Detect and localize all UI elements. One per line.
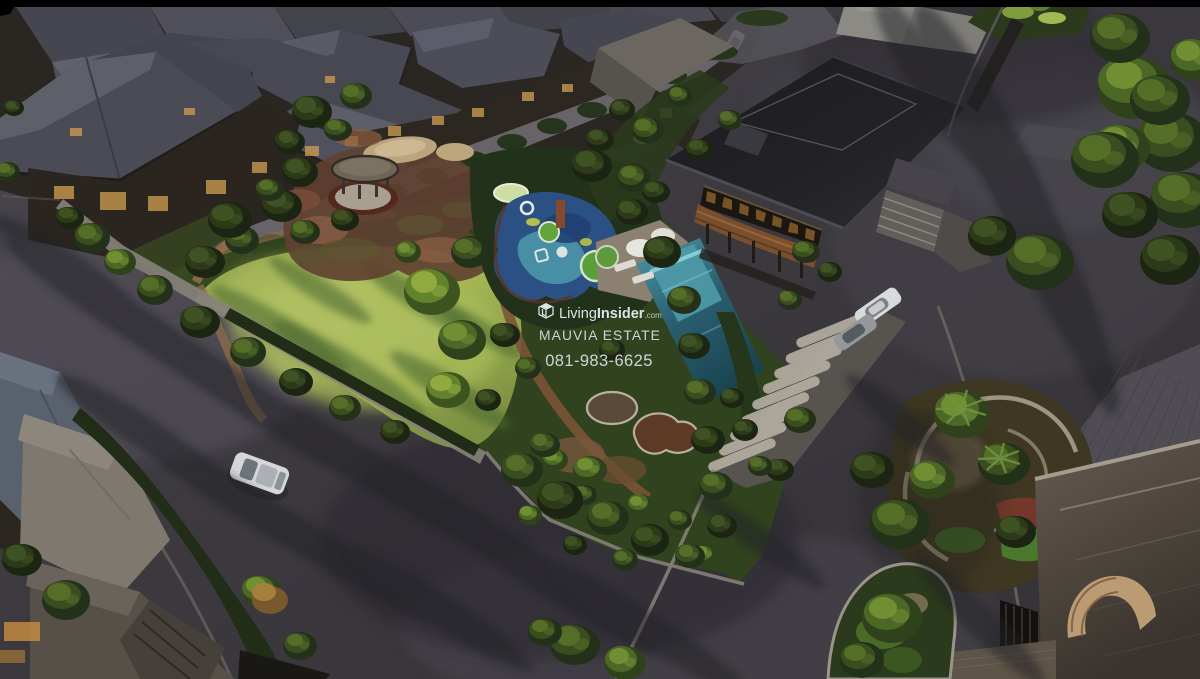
svg-text:081-983-6625: 081-983-6625 (545, 352, 653, 370)
svg-text:MAUVIA ESTATE: MAUVIA ESTATE (539, 328, 661, 343)
